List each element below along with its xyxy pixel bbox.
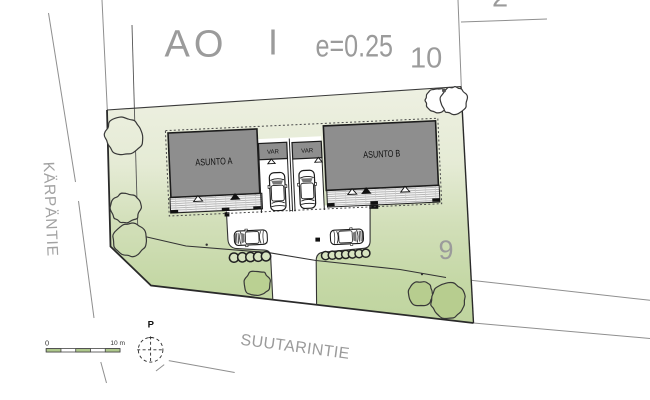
svg-text:0: 0 [45, 339, 49, 348]
svg-text:VAR: VAR [267, 149, 280, 156]
svg-text:10 m: 10 m [110, 340, 125, 347]
svg-text:P: P [148, 319, 155, 330]
svg-text:ASUNTO B: ASUNTO B [363, 148, 400, 161]
svg-text:ASUNTO A: ASUNTO A [195, 156, 233, 169]
svg-text:I: I [268, 22, 278, 63]
svg-text:e=0.25: e=0.25 [316, 27, 394, 63]
svg-text:VAR: VAR [301, 148, 314, 155]
svg-text:9: 9 [439, 235, 454, 265]
svg-text:AO: AO [165, 24, 228, 66]
svg-text:2: 2 [492, 0, 508, 13]
svg-text:10: 10 [410, 42, 442, 74]
